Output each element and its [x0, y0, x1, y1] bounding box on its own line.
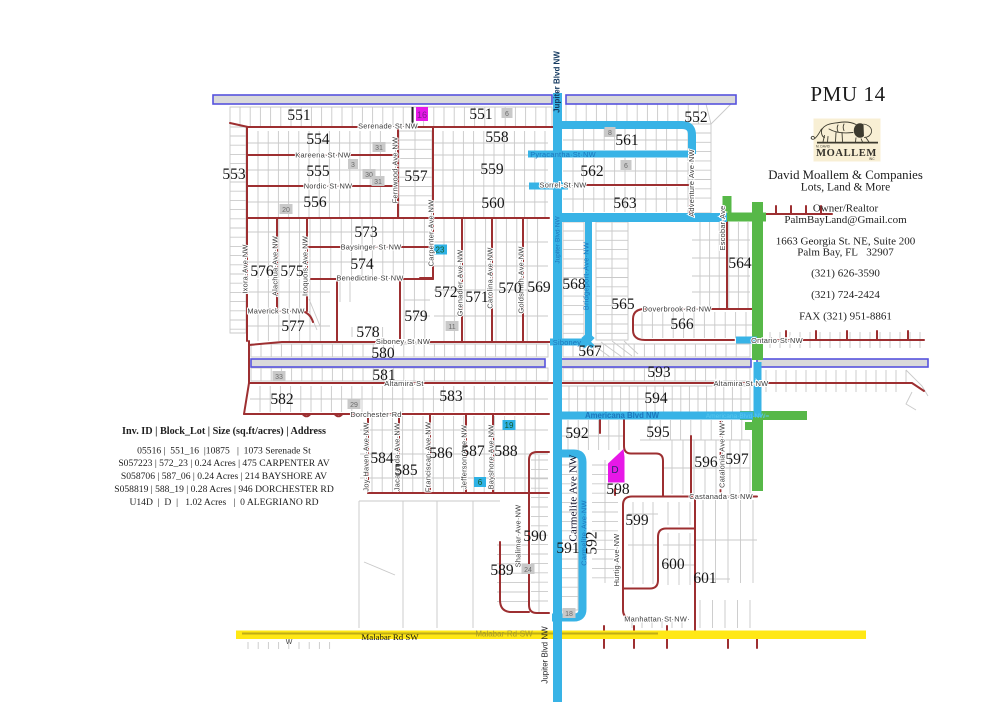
svg-text:31: 31 [374, 179, 382, 186]
svg-text:S057223 | 572_23 | 0.24 Acres: S057223 | 572_23 | 0.24 Acres | 475 CARP… [118, 458, 329, 469]
svg-text:575: 575 [280, 263, 304, 280]
svg-text:594: 594 [644, 390, 668, 407]
svg-text:FAX (321) 951-8861: FAX (321) 951-8861 [799, 311, 892, 323]
svg-text:11: 11 [448, 324, 455, 331]
svg-text:Baysinger·St·NW: Baysinger·St·NW [341, 243, 402, 252]
svg-text:Grenadier·Ave·NW: Grenadier·Ave·NW [456, 250, 465, 317]
svg-text:3: 3 [351, 162, 355, 169]
svg-text:20: 20 [282, 207, 290, 214]
svg-text:558: 558 [485, 129, 509, 146]
svg-text:587: 587 [461, 443, 485, 460]
svg-text:S058706 | 587_06 | 0.24 Acres: S058706 | 587_06 | 0.24 Acres | 214 BAYS… [121, 471, 327, 482]
svg-text:565: 565 [611, 296, 635, 313]
svg-text:PalmBayLand@Gmail.com: PalmBayLand@Gmail.com [784, 214, 907, 226]
svg-text:Owner/Realtor: Owner/Realtor [813, 203, 879, 215]
svg-text:W: W [286, 639, 293, 646]
svg-text:PMU 14: PMU 14 [810, 82, 885, 106]
svg-text:551: 551 [287, 107, 310, 124]
svg-text:INC: INC [869, 157, 875, 161]
svg-text:596: 596 [694, 454, 718, 471]
svg-text:Dorchester·Rd: Dorchester·Rd [350, 410, 401, 419]
svg-text:24: 24 [524, 567, 532, 574]
svg-text:574: 574 [350, 256, 374, 273]
svg-text:Kareena·St·NW: Kareena·St·NW [295, 151, 350, 160]
svg-text:552: 552 [684, 109, 707, 126]
svg-text:566: 566 [670, 316, 694, 333]
svg-text:598: 598 [606, 481, 630, 498]
svg-text:599: 599 [625, 512, 649, 529]
svg-text:564: 564 [728, 255, 752, 272]
svg-text:597: 597 [725, 451, 749, 468]
svg-text:600: 600 [661, 556, 685, 573]
svg-text:586: 586 [429, 445, 453, 462]
svg-text:551: 551 [469, 106, 492, 123]
svg-text:Maverick·St·NW: Maverick·St·NW [247, 307, 304, 316]
svg-text:589: 589 [490, 562, 514, 579]
svg-text:562: 562 [580, 163, 603, 180]
svg-text:(321) 626-3590: (321) 626-3590 [811, 268, 880, 280]
svg-text:Americana·Blvd·NW=: Americana·Blvd·NW= [706, 413, 770, 420]
svg-text:Sorrel·St·NW: Sorrel·St·NW [540, 181, 587, 190]
svg-text:23: 23 [436, 246, 445, 255]
svg-text:Hurtig·Ave·NW: Hurtig·Ave·NW [612, 534, 621, 587]
svg-text:Nordic·St·NW: Nordic·St·NW [304, 182, 353, 191]
svg-text:Doverbrook·Rd·NW: Doverbrook·Rd·NW [643, 305, 712, 314]
svg-text:Siboney: Siboney [553, 338, 582, 347]
svg-text:Benedictine·St·NW: Benedictine·St·NW [336, 274, 403, 283]
svg-text:585: 585 [394, 462, 418, 479]
svg-text:577: 577 [281, 318, 305, 335]
svg-text:569: 569 [527, 279, 551, 296]
svg-text:584: 584 [370, 450, 394, 467]
svg-text:578: 578 [356, 324, 380, 341]
svg-text:Adventure·Ave·NW: Adventure·Ave·NW [687, 149, 696, 217]
svg-text:579: 579 [404, 308, 428, 325]
svg-text:Ixora·Ave·NW: Ixora·Ave·NW [241, 244, 250, 293]
svg-text:Escobar·Ave: Escobar·Ave [718, 206, 727, 251]
svg-text:18: 18 [565, 611, 573, 618]
svg-text:Shalimar·Ave·NW: Shalimar·Ave·NW [514, 505, 523, 568]
svg-text:581: 581 [372, 367, 395, 384]
svg-text:MOALLEM: MOALLEM [816, 148, 877, 159]
svg-text:591: 591 [556, 540, 579, 557]
svg-text:Jacaranda·Ave·NW: Jacaranda·Ave·NW [393, 423, 402, 491]
svg-text:580: 580 [371, 345, 395, 362]
svg-text:David Moallem & Companies: David Moallem & Companies [768, 168, 923, 182]
svg-text:Manhattan·St·NW·: Manhattan·St·NW· [624, 615, 690, 624]
svg-text:Jupiter Blvd NW: Jupiter Blvd NW [553, 51, 562, 113]
svg-text:560: 560 [481, 195, 505, 212]
svg-text:Ontario·St·NW: Ontario·St·NW [751, 336, 803, 345]
svg-text:8: 8 [608, 130, 612, 137]
svg-text:554: 554 [306, 131, 330, 148]
svg-text:Pyracantha·St·NW: Pyracantha·St·NW [530, 150, 596, 159]
svg-text:D: D [611, 465, 618, 476]
svg-text:Inv. ID | Block_Lot | Size (sq: Inv. ID | Block_Lot | Size (sq.ft/acres)… [122, 426, 326, 437]
svg-text:601: 601 [693, 570, 716, 587]
svg-text:Lots, Land & More: Lots, Land & More [801, 182, 890, 194]
svg-text:561: 561 [615, 132, 638, 149]
svg-text:Carmelite Ave NW: Carmelite Ave NW [568, 454, 580, 542]
svg-text:583: 583 [439, 388, 463, 405]
svg-text:Castanada·St·NW: Castanada·St·NW [689, 492, 753, 501]
svg-text:Joy·Haven·Ave·NW: Joy·Haven·Ave·NW [362, 422, 371, 491]
svg-text:Altamira·St·NW: Altamira·St·NW [714, 379, 769, 388]
svg-text:Malabar Rd SW: Malabar Rd SW [361, 632, 419, 642]
svg-text:595: 595 [646, 424, 670, 441]
svg-text:Jupiter Blvd NW: Jupiter Blvd NW [541, 626, 550, 684]
svg-text:571: 571 [465, 289, 488, 306]
svg-text:553: 553 [222, 166, 246, 183]
svg-text:6: 6 [624, 163, 628, 170]
svg-text:592: 592 [584, 531, 601, 554]
svg-text:590: 590 [523, 528, 547, 545]
svg-text:568: 568 [562, 276, 586, 293]
svg-text:567: 567 [578, 343, 602, 360]
svg-text:593: 593 [647, 364, 671, 381]
svg-text:570: 570 [498, 280, 522, 297]
svg-text:555: 555 [306, 163, 330, 180]
svg-text:6: 6 [478, 478, 483, 487]
svg-text:16: 16 [417, 110, 427, 120]
svg-text:(321) 724-2424: (321) 724-2424 [811, 289, 880, 301]
svg-text:576: 576 [250, 263, 274, 280]
svg-text:6: 6 [505, 111, 509, 118]
svg-text:Carpenter·Ave·NW: Carpenter·Ave·NW [427, 200, 436, 267]
svg-text:19: 19 [505, 421, 514, 430]
svg-text:592: 592 [565, 425, 588, 442]
svg-text:563: 563 [613, 195, 637, 212]
svg-text:Palm Bay, FL 32907: Palm Bay, FL 32907 [797, 247, 894, 259]
svg-text:588: 588 [494, 443, 518, 460]
svg-text:U14D | D | 1.02 Acres |: U14D | D | 1.02 Acres | 0 ALEGRIANO RD [129, 497, 318, 508]
svg-text:556: 556 [303, 194, 327, 211]
svg-text:33: 33 [275, 374, 283, 381]
svg-text:05516 | 551_16 |10875 | 1: 05516 | 551_16 |10875 | 1073 Serenade St [137, 446, 311, 457]
svg-text:572: 572 [434, 284, 457, 301]
svg-text:Americana Blvd NW: Americana Blvd NW [585, 411, 660, 420]
svg-text:573: 573 [354, 224, 378, 241]
svg-text:559: 559 [480, 161, 504, 178]
svg-text:S058819 | 588_19 | 0.28 Acres: S058819 | 588_19 | 0.28 Acres | 946 DORC… [114, 484, 334, 495]
svg-text:29: 29 [350, 402, 358, 409]
svg-text:582: 582 [270, 391, 293, 408]
svg-text:557: 557 [404, 168, 428, 185]
svg-text:Malabar·Rd·SW: Malabar·Rd·SW [475, 630, 533, 639]
svg-text:Serenade·St·NW: Serenade·St·NW [358, 122, 418, 131]
svg-text:31: 31 [375, 145, 383, 152]
svg-text:Jupiter·Blvd·NW: Jupiter·Blvd·NW [555, 215, 562, 263]
svg-text:Fernwood·Ave·NW: Fernwood·Ave·NW [391, 137, 400, 203]
